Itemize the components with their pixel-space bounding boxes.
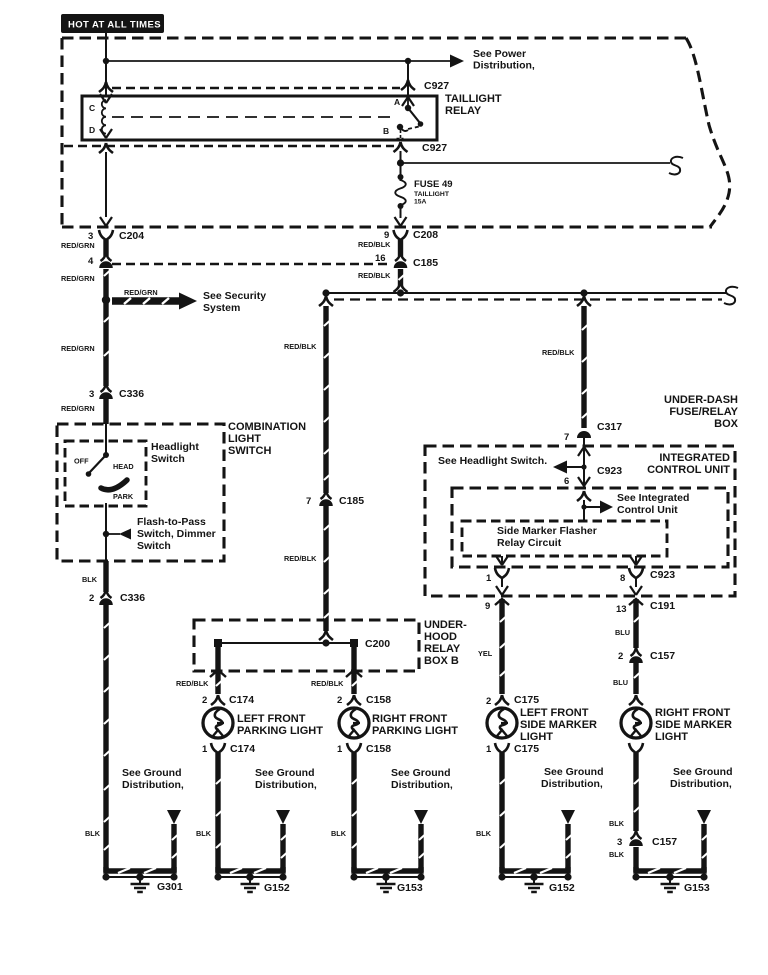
svg-text:See Ground: See Ground	[673, 766, 733, 778]
svg-text:C157: C157	[650, 650, 675, 662]
svg-text:Flash-to-Pass: Flash-to-Pass	[137, 516, 206, 528]
svg-text:C191: C191	[650, 600, 675, 612]
svg-text:Distribution,: Distribution,	[541, 778, 603, 790]
svg-text:C204: C204	[119, 230, 144, 242]
svg-text:RED/GRN: RED/GRN	[61, 344, 95, 353]
svg-text:See Headlight Switch.: See Headlight Switch.	[438, 455, 547, 467]
svg-text:C336: C336	[119, 388, 144, 400]
svg-text:3: 3	[617, 837, 622, 848]
svg-text:Control Unit: Control Unit	[617, 504, 678, 516]
svg-text:G152: G152	[264, 882, 290, 894]
svg-text:RELAY: RELAY	[445, 105, 482, 117]
svg-text:6: 6	[564, 476, 569, 487]
svg-text:B: B	[383, 126, 389, 136]
svg-text:See Security: See Security	[203, 290, 266, 302]
svg-text:HOT AT ALL TIMES: HOT AT ALL TIMES	[68, 20, 161, 31]
svg-text:Switch: Switch	[137, 540, 171, 552]
svg-text:C317: C317	[597, 421, 622, 433]
svg-text:7: 7	[564, 432, 569, 443]
svg-text:See Ground: See Ground	[255, 767, 315, 779]
svg-text:PARKING LIGHT: PARKING LIGHT	[372, 725, 458, 737]
svg-text:G301: G301	[157, 881, 183, 893]
svg-text:HEAD: HEAD	[113, 462, 134, 471]
svg-text:C927: C927	[424, 80, 449, 92]
svg-text:Side Marker Flasher: Side Marker Flasher	[497, 525, 597, 537]
svg-text:UNDER-: UNDER-	[424, 619, 467, 631]
svg-text:C208: C208	[413, 229, 438, 241]
svg-text:2: 2	[486, 696, 491, 707]
svg-text:Distribution,: Distribution,	[670, 778, 732, 790]
svg-text:4: 4	[88, 256, 94, 267]
svg-text:16: 16	[375, 253, 386, 264]
svg-text:1: 1	[202, 744, 208, 755]
svg-text:C174: C174	[229, 694, 254, 706]
svg-text:RED/GRN: RED/GRN	[61, 274, 95, 283]
svg-text:SIDE MARKER: SIDE MARKER	[655, 719, 732, 731]
svg-text:RED/GRN: RED/GRN	[61, 241, 95, 250]
svg-text:BLK: BLK	[196, 829, 212, 838]
svg-text:13: 13	[616, 604, 627, 615]
svg-text:2: 2	[337, 695, 342, 706]
svg-text:Headlight: Headlight	[151, 441, 199, 453]
svg-text:Distribution,: Distribution,	[255, 779, 317, 791]
svg-text:C157: C157	[652, 836, 677, 848]
svg-text:INTEGRATED: INTEGRATED	[659, 452, 730, 464]
svg-text:Distribution,: Distribution,	[473, 60, 535, 72]
svg-text:COMBINATION: COMBINATION	[228, 421, 306, 433]
svg-text:BOX: BOX	[714, 418, 739, 430]
svg-text:SWITCH: SWITCH	[228, 445, 271, 457]
svg-text:See Ground: See Ground	[391, 767, 451, 779]
svg-text:System: System	[203, 302, 240, 314]
svg-text:FUSE/RELAY: FUSE/RELAY	[669, 406, 738, 418]
svg-text:LIGHT: LIGHT	[655, 731, 688, 743]
svg-text:FUSE 49: FUSE 49	[414, 179, 453, 190]
svg-text:BLK: BLK	[82, 575, 98, 584]
svg-text:2: 2	[618, 651, 623, 662]
svg-text:8: 8	[620, 573, 625, 584]
svg-text:9: 9	[485, 601, 490, 612]
svg-text:LIGHT: LIGHT	[228, 433, 261, 445]
svg-text:TAILLIGHT: TAILLIGHT	[414, 191, 450, 198]
svg-text:LEFT FRONT: LEFT FRONT	[237, 713, 306, 725]
svg-text:7: 7	[306, 496, 311, 507]
svg-text:BLK: BLK	[609, 819, 625, 828]
svg-text:15A: 15A	[414, 199, 427, 206]
svg-text:LIGHT: LIGHT	[520, 731, 553, 743]
svg-text:SIDE MARKER: SIDE MARKER	[520, 719, 597, 731]
svg-text:C200: C200	[365, 638, 390, 650]
svg-text:G152: G152	[549, 882, 575, 894]
svg-text:BLU: BLU	[615, 628, 630, 637]
svg-text:C923: C923	[650, 569, 675, 581]
svg-text:RED/GRN: RED/GRN	[61, 404, 95, 413]
svg-text:RED/BLK: RED/BLK	[176, 679, 209, 688]
svg-text:RED/GRN: RED/GRN	[124, 288, 158, 297]
svg-text:RED/BLK: RED/BLK	[358, 271, 391, 280]
svg-text:RED/BLK: RED/BLK	[284, 342, 317, 351]
svg-text:C158: C158	[366, 694, 391, 706]
svg-text:A: A	[394, 97, 400, 107]
svg-text:Switch, Dimmer: Switch, Dimmer	[137, 528, 216, 540]
svg-text:TAILLIGHT: TAILLIGHT	[445, 93, 502, 105]
svg-text:Switch: Switch	[151, 453, 185, 465]
svg-text:G153: G153	[397, 882, 423, 894]
svg-text:CONTROL UNIT: CONTROL UNIT	[647, 464, 730, 476]
svg-text:1: 1	[486, 744, 492, 755]
svg-text:RIGHT FRONT: RIGHT FRONT	[372, 713, 447, 725]
svg-text:Distribution,: Distribution,	[391, 779, 453, 791]
svg-text:1: 1	[337, 744, 343, 755]
svg-text:UNDER-DASH: UNDER-DASH	[664, 394, 738, 406]
svg-text:BLK: BLK	[476, 829, 492, 838]
svg-text:HOOD: HOOD	[424, 631, 457, 643]
svg-text:C175: C175	[514, 694, 539, 706]
svg-text:Distribution,: Distribution,	[122, 779, 184, 791]
svg-text:See Ground: See Ground	[122, 767, 182, 779]
svg-text:3: 3	[89, 389, 94, 400]
svg-text:C174: C174	[230, 743, 255, 755]
svg-text:RELAY: RELAY	[424, 643, 461, 655]
svg-text:See Ground: See Ground	[544, 766, 604, 778]
svg-text:G153: G153	[684, 882, 710, 894]
svg-text:C175: C175	[514, 743, 539, 755]
svg-text:RIGHT FRONT: RIGHT FRONT	[655, 707, 730, 719]
svg-text:PARKING LIGHT: PARKING LIGHT	[237, 725, 323, 737]
svg-text:C336: C336	[120, 592, 145, 604]
svg-text:C185: C185	[339, 495, 364, 507]
svg-text:See Integrated: See Integrated	[617, 492, 689, 504]
svg-text:BLK: BLK	[331, 829, 347, 838]
svg-text:BOX B: BOX B	[424, 655, 459, 667]
svg-text:BLK: BLK	[85, 829, 101, 838]
svg-text:D: D	[89, 125, 95, 135]
svg-text:LEFT FRONT: LEFT FRONT	[520, 707, 589, 719]
svg-text:2: 2	[89, 593, 94, 604]
svg-text:RED/BLK: RED/BLK	[284, 554, 317, 563]
svg-text:C: C	[89, 103, 95, 113]
svg-text:RED/BLK: RED/BLK	[311, 679, 344, 688]
svg-text:C185: C185	[413, 257, 438, 269]
svg-text:OFF: OFF	[74, 457, 89, 466]
svg-text:PARK: PARK	[113, 492, 134, 501]
svg-text:C158: C158	[366, 743, 391, 755]
svg-text:C923: C923	[597, 465, 622, 477]
svg-text:BLK: BLK	[609, 850, 625, 859]
svg-text:BLU: BLU	[613, 678, 628, 687]
svg-text:C927: C927	[422, 142, 447, 154]
svg-text:RED/BLK: RED/BLK	[542, 348, 575, 357]
svg-text:See Power: See Power	[473, 48, 526, 60]
svg-text:1: 1	[486, 573, 492, 584]
svg-text:RED/BLK: RED/BLK	[358, 240, 391, 249]
svg-text:Relay Circuit: Relay Circuit	[497, 537, 562, 549]
svg-text:2: 2	[202, 695, 207, 706]
svg-text:YEL: YEL	[478, 649, 493, 658]
